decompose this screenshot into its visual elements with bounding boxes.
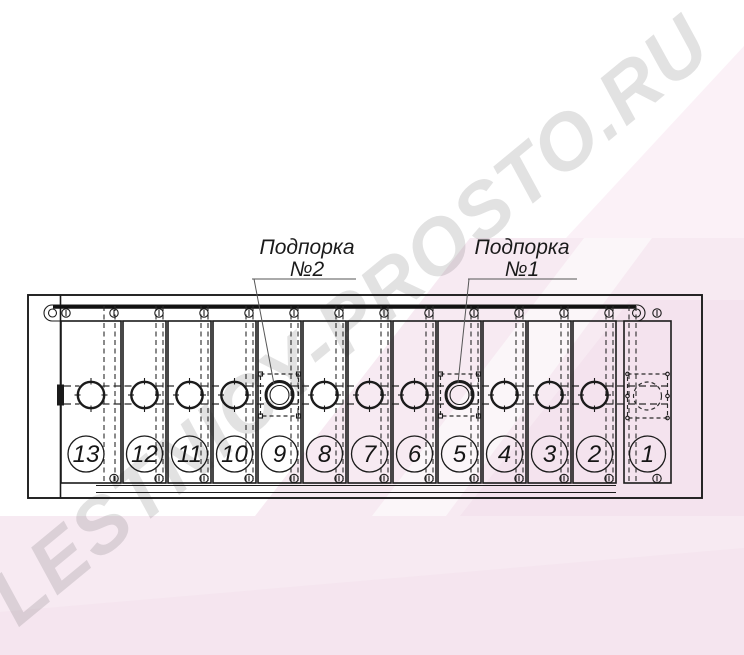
support2-number: №2 xyxy=(290,258,325,281)
support1-label: Подпорка xyxy=(474,236,569,259)
technical-drawing: LESTNICY-PROSTO.RU 13121110987654321 xyxy=(0,0,744,655)
hole-circle xyxy=(78,382,104,408)
panel-number: 7 xyxy=(363,441,378,468)
panel-number: 8 xyxy=(318,441,332,468)
drawing-canvas: LESTNICY-PROSTO.RU 13121110987654321 xyxy=(0,0,744,655)
panel-number: 11 xyxy=(177,441,202,468)
support1-number: №1 xyxy=(505,258,539,281)
panel-number: 2 xyxy=(587,441,601,468)
panel-number-badge: 10 xyxy=(217,436,253,472)
panel-number-badge: 13 xyxy=(68,436,104,472)
panel-number: 4 xyxy=(498,441,511,468)
screw-icon xyxy=(155,309,163,317)
panel-number-badge: 12 xyxy=(127,436,163,472)
panel-number: 1 xyxy=(641,441,654,468)
screw-icon xyxy=(62,309,70,317)
panel-number: 6 xyxy=(408,441,422,468)
panel-number: 5 xyxy=(453,441,467,468)
screw-icon xyxy=(110,309,118,317)
hole-circle xyxy=(131,382,157,408)
rail-left-end-pin xyxy=(49,309,57,317)
panel-number-badge: 9 xyxy=(262,436,298,472)
panel-number: 12 xyxy=(131,441,158,468)
panel-number: 13 xyxy=(73,441,100,468)
panel-number: 9 xyxy=(273,441,286,468)
screw-icon xyxy=(200,309,208,317)
support2-label: Подпорка xyxy=(259,236,354,259)
panel-number: 10 xyxy=(221,441,248,468)
tread-hole xyxy=(75,378,108,412)
panel-13: 13 xyxy=(61,306,121,483)
panel-number: 3 xyxy=(543,441,557,468)
screw-icon xyxy=(245,309,253,317)
